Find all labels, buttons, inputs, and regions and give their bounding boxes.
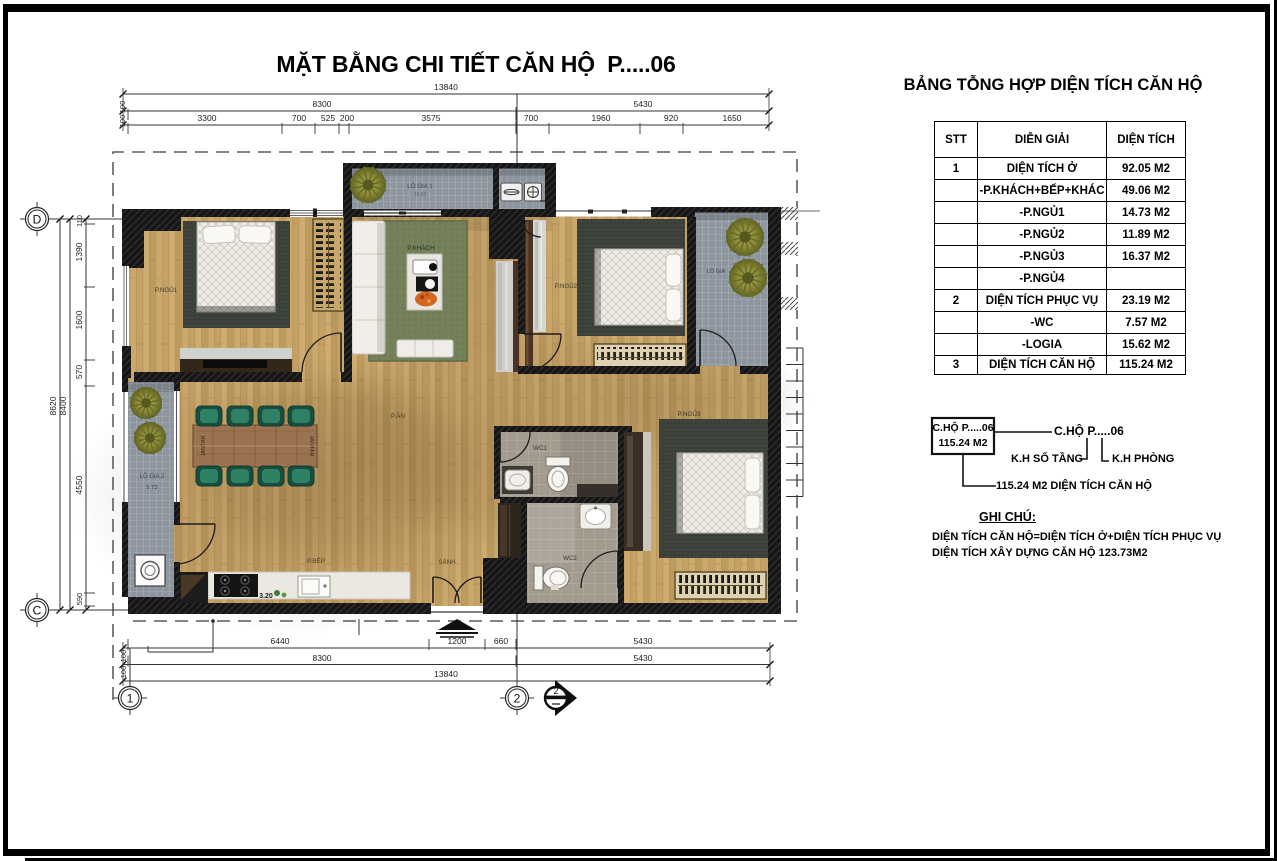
- svg-text:1600: 1600: [74, 310, 84, 329]
- svg-text:1960: 1960: [592, 113, 611, 123]
- svg-text:590: 590: [75, 593, 84, 606]
- svg-text:1390: 1390: [74, 242, 84, 261]
- svg-text:200: 200: [340, 113, 354, 123]
- svg-text:LÔ GIA: LÔ GIA: [707, 268, 726, 275]
- svg-text:3575: 3575: [422, 113, 441, 123]
- svg-text:LÔ GIA 1: LÔ GIA 1: [407, 183, 433, 190]
- svg-text:LÔ GIA 2: LÔ GIA 2: [140, 473, 165, 480]
- svg-text:8300: 8300: [313, 99, 332, 109]
- svg-text:2: 2: [553, 686, 558, 696]
- svg-text:JANTAR: JANTAR: [308, 436, 314, 457]
- svg-text:5430: 5430: [634, 653, 653, 663]
- svg-text:P.NGỦ3: P.NGỦ3: [678, 409, 701, 418]
- svg-text:WC2: WC2: [563, 555, 577, 562]
- svg-text:570: 570: [74, 365, 84, 379]
- svg-text:D: D: [33, 213, 42, 227]
- svg-text:110: 110: [75, 215, 84, 227]
- svg-text:700: 700: [524, 113, 538, 123]
- svg-text:15.62: 15.62: [414, 192, 427, 198]
- svg-text:1650: 1650: [723, 113, 742, 123]
- svg-text:13840: 13840: [434, 82, 458, 92]
- svg-text:100: 100: [118, 115, 127, 128]
- svg-text:1: 1: [127, 692, 134, 706]
- svg-text:660: 660: [494, 636, 508, 646]
- svg-text:6440: 6440: [271, 636, 290, 646]
- svg-text:13840: 13840: [434, 669, 458, 679]
- svg-text:5.73: 5.73: [146, 485, 157, 491]
- svg-text:8400: 8400: [58, 396, 68, 415]
- svg-text:P.NGỦ2: P.NGỦ2: [555, 283, 578, 290]
- svg-text:C: C: [33, 604, 42, 618]
- svg-text:920: 920: [664, 113, 678, 123]
- svg-text:100: 100: [118, 101, 127, 114]
- svg-text:100: 100: [119, 650, 128, 663]
- svg-text:5430: 5430: [634, 636, 653, 646]
- svg-text:P.NGỦ1: P.NGỦ1: [155, 287, 178, 294]
- svg-text:P.KHÁCH: P.KHÁCH: [407, 243, 435, 252]
- svg-text:8300: 8300: [313, 653, 332, 663]
- svg-text:JANTAR: JANTAR: [201, 435, 207, 456]
- svg-text:5430: 5430: [634, 99, 653, 109]
- svg-text:3.20: 3.20: [259, 593, 273, 600]
- svg-text:SẢNH: SẢNH: [438, 559, 455, 566]
- svg-text:2: 2: [514, 692, 521, 706]
- svg-text:700: 700: [292, 113, 306, 123]
- svg-text:100: 100: [119, 666, 128, 679]
- svg-text:P.ĂN: P.ĂN: [391, 411, 405, 420]
- svg-text:8620: 8620: [48, 396, 58, 415]
- svg-text:525: 525: [321, 113, 335, 123]
- svg-text:WC1: WC1: [533, 445, 547, 452]
- svg-text:3300: 3300: [198, 113, 217, 123]
